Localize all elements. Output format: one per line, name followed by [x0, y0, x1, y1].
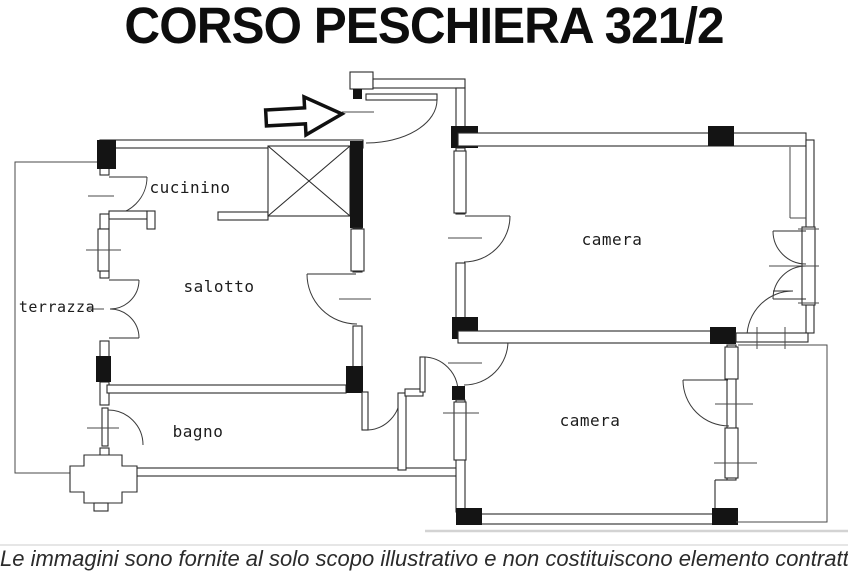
entrance-arrow-icon — [265, 95, 343, 137]
floor-plan-drawing: cucinino salotto terrazza bagno camera c… — [0, 0, 848, 566]
right-wing-walls — [443, 126, 827, 525]
light-shaft-x-box — [268, 141, 363, 228]
entrance-door-leaf — [366, 94, 437, 100]
balcony-outline — [736, 345, 827, 522]
terrace-outline — [15, 162, 97, 473]
room-label-terrazza: terrazza — [19, 298, 95, 316]
floorplan-page: { "title": "CORSO PESCHIERA 321/2", "dis… — [0, 0, 848, 566]
room-label-bagno: bagno — [173, 422, 224, 441]
disclaimer-text: Le immagini sono fornite al solo scopo i… — [0, 546, 848, 572]
room-label-camera-north: camera — [582, 230, 643, 249]
room-label-cucinino: cucinino — [149, 178, 230, 197]
entry-hall-walls — [307, 72, 510, 470]
chimney-cross — [70, 455, 137, 503]
scan-artifacts — [0, 531, 848, 545]
room-label-salotto: salotto — [184, 277, 255, 296]
room-label-camera-south: camera — [560, 411, 621, 430]
